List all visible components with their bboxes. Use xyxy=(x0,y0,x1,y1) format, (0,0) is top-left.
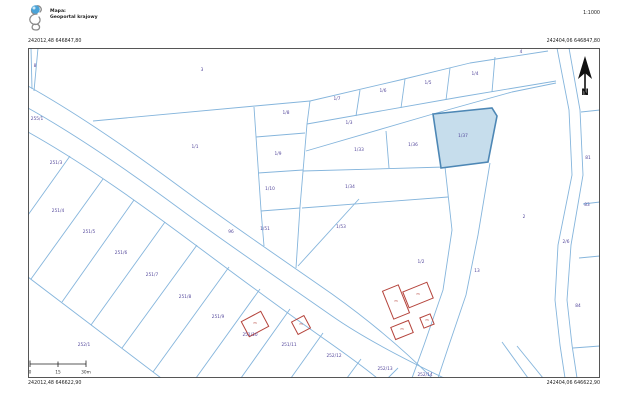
parcel-label: 13 xyxy=(474,268,480,274)
scale-bar-label-0: 0 xyxy=(29,370,32,376)
north-arrow-icon: N xyxy=(578,56,592,98)
parcel-label: 251/3 xyxy=(50,160,63,166)
parcel-label: 4 xyxy=(520,49,523,55)
coordinate-top-left: 242012,48 646847,80 xyxy=(28,39,81,44)
scale-bar-label-15: 15 xyxy=(55,370,61,376)
parcel-label: 2 xyxy=(523,214,526,220)
parcel-label: 252/13 xyxy=(377,366,392,372)
parcel-label: 251/6 xyxy=(115,250,128,256)
building-outlines xyxy=(241,282,434,339)
parcel-label: 255/1 xyxy=(31,116,44,122)
parcel-label: 1/36 xyxy=(408,142,418,148)
north-arrow-n-label: N xyxy=(581,88,589,98)
building-label: m xyxy=(425,318,428,322)
building-label: m xyxy=(253,321,256,325)
parcel-label: 1/4 xyxy=(472,71,479,77)
parcel-label: 1/3 xyxy=(346,120,353,126)
scale-bar-label-30m: 30m xyxy=(81,370,91,376)
parcel-label: 1/10 xyxy=(265,186,275,192)
parcel-label: 81 xyxy=(585,155,591,161)
parcel-label: 1/5 xyxy=(425,80,432,86)
geoportal-logo xyxy=(26,3,48,33)
logo-globe-icon xyxy=(31,5,40,14)
building-label: m xyxy=(299,322,302,326)
cadastral-map-canvas[interactable]: 1/37 83255/1251/3251/4251/5251/6251/7251… xyxy=(28,48,600,378)
parcel-label: 251/5 xyxy=(83,229,96,235)
parcel-label: 251/4 xyxy=(52,208,65,214)
map-frame-border xyxy=(29,49,600,378)
coordinate-top-right: 242404,06 646847,80 xyxy=(547,39,600,44)
parcel-label: 84 xyxy=(575,303,581,309)
parcel-label: 8 xyxy=(34,63,37,69)
parcel-label: 252/12 xyxy=(326,353,341,359)
parcel-label: 96 xyxy=(228,229,234,235)
parcel-label: 1/33 xyxy=(354,147,364,153)
parcel-label: 252/1 xyxy=(78,342,91,348)
map-title: Mapa: Geoportal krajowy xyxy=(50,9,98,21)
parcel-label: 251/7 xyxy=(146,272,159,278)
parcel-label: 1/2 xyxy=(418,259,425,265)
parcel-label: 1/9 xyxy=(275,151,282,157)
parcel-label: 1/1 xyxy=(192,144,199,150)
building-label: m xyxy=(394,299,397,303)
scale-bar xyxy=(30,361,86,368)
parcel-label: 3 xyxy=(201,67,204,73)
coordinate-bottom-right: 242404,06 646622,90 xyxy=(547,381,600,386)
parcel-label: 1/7 xyxy=(334,96,341,102)
portal-name: Geoportal krajowy xyxy=(50,15,98,21)
parcel-boundary-lines xyxy=(28,48,600,378)
parcel-label: 1/6 xyxy=(380,88,387,94)
parcel-label: 251/9 xyxy=(212,314,225,320)
map-scale-label: 1:1000 xyxy=(583,11,600,16)
coordinate-bottom-left: 242012,48 646622,90 xyxy=(28,381,81,386)
parcel-labels: 83255/1251/3251/4251/5251/6251/7251/8251… xyxy=(31,49,591,378)
parcel-label: 1/34 xyxy=(345,184,355,190)
parcel-label: 2/6 xyxy=(563,239,570,245)
building-labels: mmmmmm xyxy=(253,292,428,331)
parcel-label: 251/8 xyxy=(179,294,192,300)
highlighted-parcel-label: 1/37 xyxy=(458,133,468,139)
building-label: m xyxy=(400,327,403,331)
parcel-label: 251/10 xyxy=(242,332,257,338)
parcel-label: 1/51 xyxy=(260,226,270,232)
building-label: m xyxy=(416,292,419,296)
parcel-label: 1/8 xyxy=(283,110,290,116)
parcel-label: 251/11 xyxy=(281,342,296,348)
parcel-label: 83 xyxy=(584,202,590,208)
geoportal-print-page: Mapa: Geoportal krajowy 1:1000 242012,48… xyxy=(0,0,620,400)
parcel-label: 1/53 xyxy=(336,224,346,230)
